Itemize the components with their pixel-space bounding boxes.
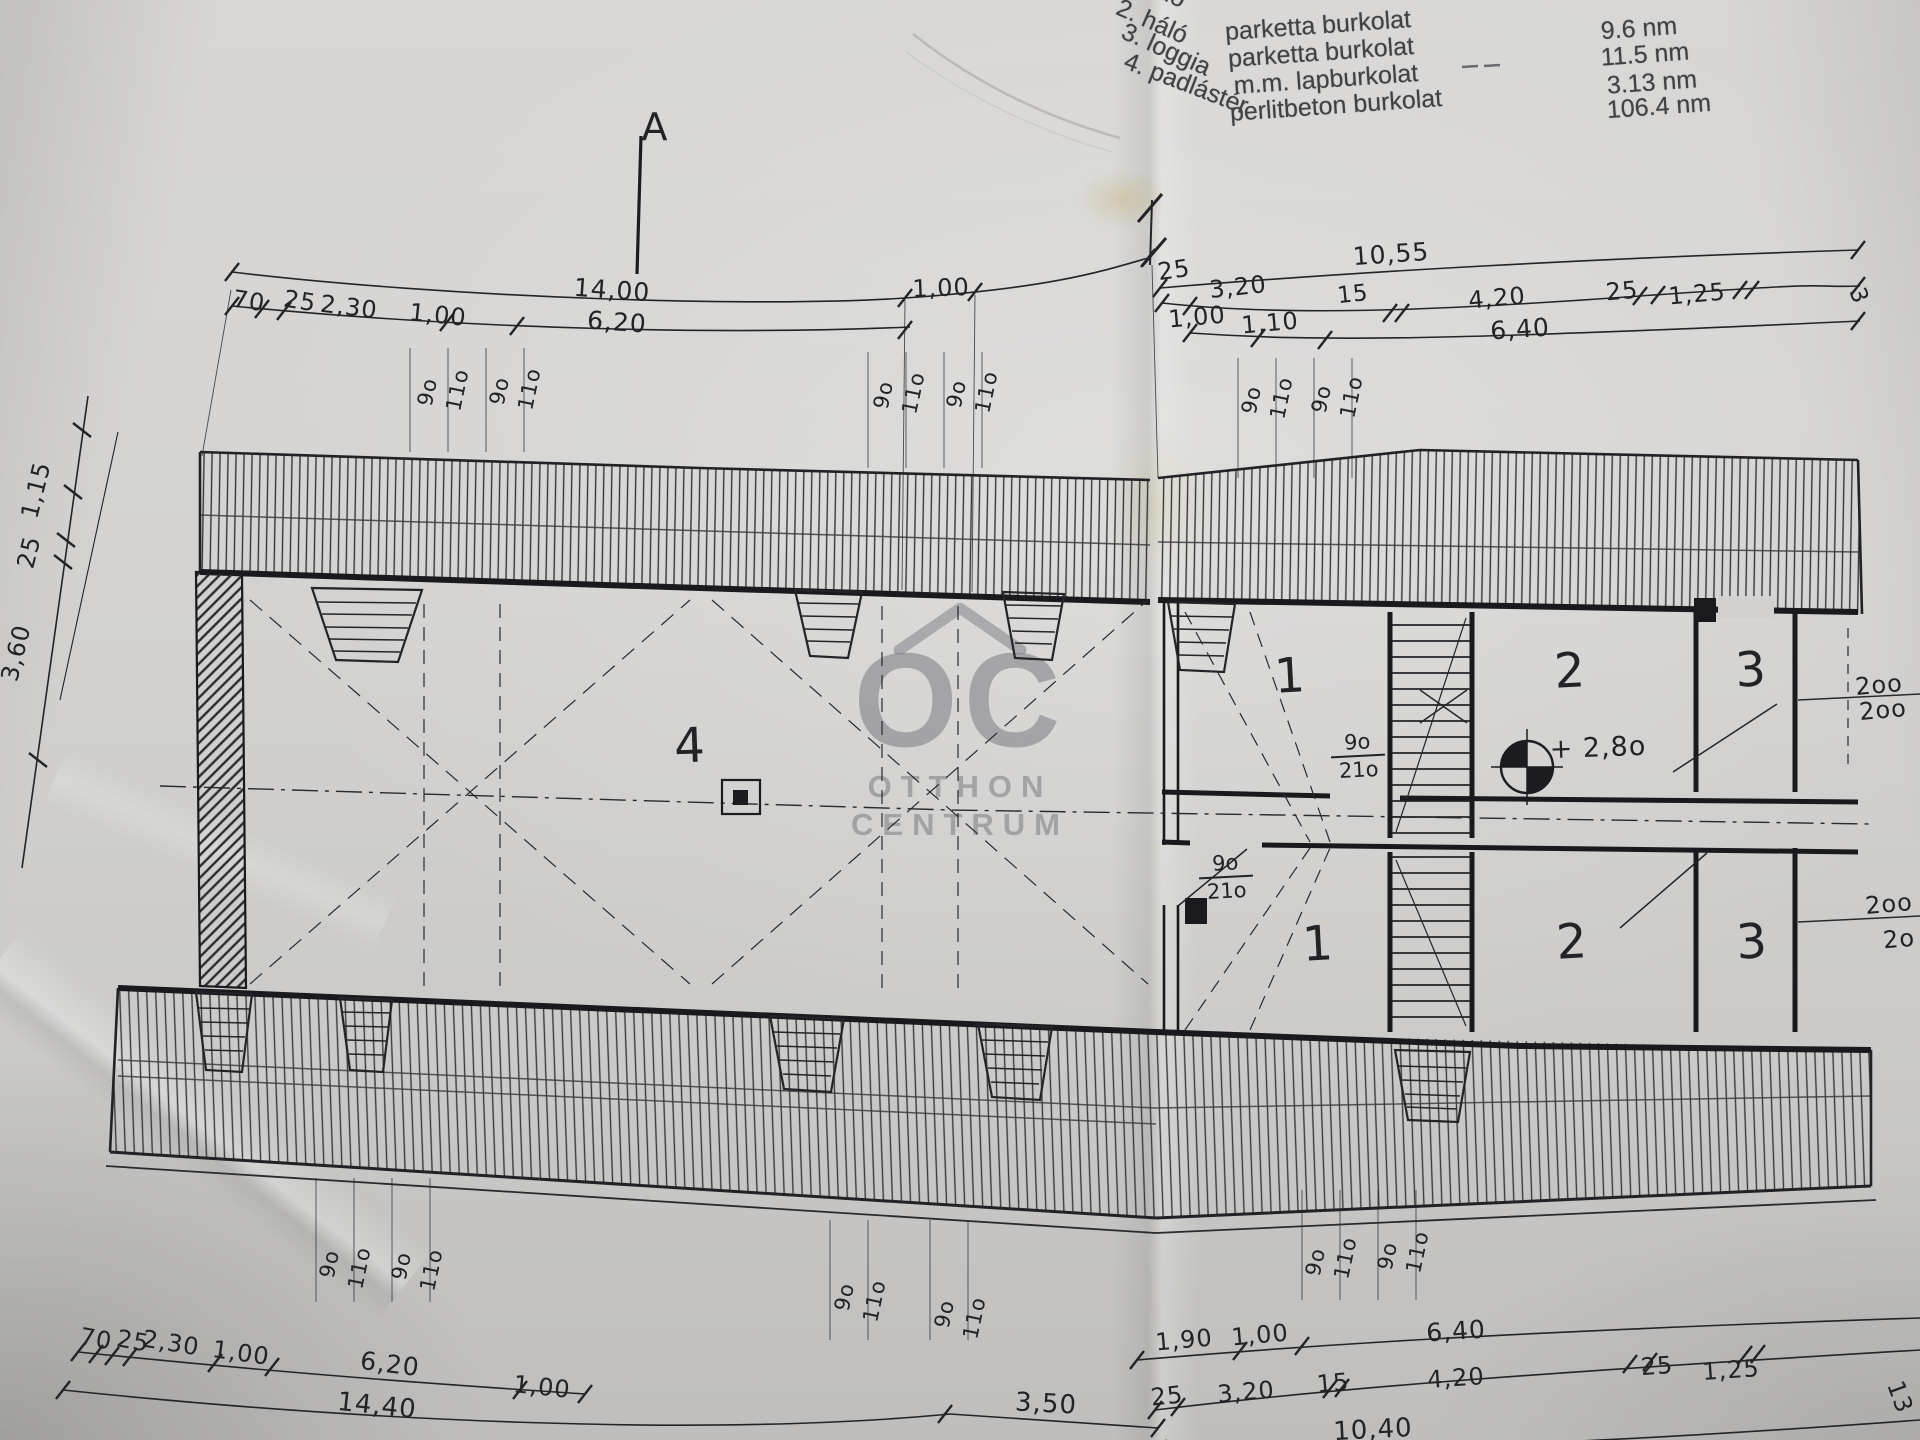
window-size-label: 9o xyxy=(487,375,513,407)
dimension-label: 25 xyxy=(13,533,44,570)
window-size-label: 9o xyxy=(317,1248,343,1280)
dimension-label: 6,40 xyxy=(1489,314,1550,343)
floorplan-photo: OC OTTHON CENTRUM xyxy=(0,0,1920,1440)
room-number-label: 2 xyxy=(1555,917,1589,967)
dimension-label: 6,20 xyxy=(586,307,647,336)
dimension-label: 25 xyxy=(1156,256,1192,284)
room-number-label: 2 xyxy=(1553,646,1587,696)
door-size-label: 9o21o xyxy=(1198,851,1255,904)
dimension-label: 3,20 xyxy=(1208,272,1268,302)
dimension-label: 2oo xyxy=(1864,890,1914,918)
window-size-label: 11o xyxy=(1267,375,1296,421)
window-size-label: 11o xyxy=(972,369,1001,415)
dimension-label: 13 xyxy=(1883,1378,1917,1417)
window-size-label: 11o xyxy=(899,370,928,416)
window-size-label: 11o xyxy=(1337,374,1366,420)
dimension-label: 1,00 xyxy=(408,300,468,330)
dimension-label: 4,20 xyxy=(1427,1364,1486,1392)
dimension-label: 4,20 xyxy=(1467,284,1526,313)
dimension-label: 2oo xyxy=(1858,696,1908,724)
window-size-label: 9o xyxy=(1303,1246,1329,1278)
window-size-label: 11o xyxy=(1331,1235,1360,1281)
dimension-label: 1,00 xyxy=(211,1337,271,1369)
dimension-label: 15 xyxy=(1336,282,1370,308)
window-size-label: 9o xyxy=(389,1250,415,1282)
dimension-label: 1,00 xyxy=(912,275,970,301)
door-height: 21o xyxy=(1338,757,1379,783)
window-size-label: 9o xyxy=(871,379,897,411)
room-number-label: 1 xyxy=(1301,919,1335,969)
dimension-label: 25 xyxy=(1640,1353,1674,1379)
window-size-label: 9o xyxy=(944,378,970,410)
dimension-label: 10,55 xyxy=(1352,239,1430,269)
level-annotation: + 2,8o xyxy=(1549,733,1647,763)
dimension-label: 70 xyxy=(231,287,267,316)
dimension-label: 1,90 xyxy=(1154,1326,1213,1355)
dimension-label: 3 xyxy=(1845,285,1872,308)
dimension-label: 70 xyxy=(78,1324,114,1353)
window-size-label: 9o xyxy=(932,1298,958,1330)
window-size-label: 9o xyxy=(415,376,441,408)
window-size-label: 11o xyxy=(860,1278,889,1324)
dimension-label: 1,10 xyxy=(1240,309,1299,338)
dimension-label: 14,00 xyxy=(573,275,651,305)
window-size-label: 11o xyxy=(515,366,544,412)
dimension-label: 25 xyxy=(1605,278,1640,305)
dimension-label: 1,00 xyxy=(1167,303,1226,332)
window-size-label: 11o xyxy=(1403,1229,1432,1275)
window-size-label: 11o xyxy=(960,1295,989,1341)
dimension-label: 6,40 xyxy=(1425,1316,1486,1345)
room-number-label: 4 xyxy=(673,721,706,770)
dimension-label: 14,40 xyxy=(336,1389,418,1423)
window-size-label: 9o xyxy=(1309,383,1335,415)
door-width: 9o xyxy=(1212,850,1239,875)
door-size-label: 9o21o xyxy=(1330,730,1387,783)
dimension-label: 25 xyxy=(1150,1382,1185,1409)
window-size-label: 11o xyxy=(345,1245,374,1291)
dimension-label: 1,25 xyxy=(1667,280,1726,309)
dimension-label: 1,00 xyxy=(512,1372,572,1402)
dimension-label: 6,20 xyxy=(359,1348,421,1380)
dimension-label: 3,60 xyxy=(0,622,35,684)
dimension-label: 15 xyxy=(1316,1370,1351,1397)
room-number-label: 1 xyxy=(1273,651,1307,701)
dimension-label: 2,30 xyxy=(319,292,379,323)
dimension-label: 3,50 xyxy=(1014,1389,1077,1418)
dimension-label: 10,40 xyxy=(1333,1415,1414,1440)
room-number-label: 3 xyxy=(1734,645,1768,695)
dimension-label: 3,20 xyxy=(1216,1378,1275,1407)
window-size-label: 9o xyxy=(1239,384,1265,416)
dimension-label: 1,00 xyxy=(1230,1321,1289,1350)
window-size-label: 9o xyxy=(832,1281,858,1313)
dimension-label: 1,25 xyxy=(1702,1356,1761,1384)
section-marker-label: A xyxy=(642,108,669,146)
door-width: 9o xyxy=(1344,729,1371,754)
dimension-label: 25 xyxy=(282,287,318,316)
door-height: 21o xyxy=(1206,878,1247,904)
window-size-label: 11o xyxy=(443,367,472,413)
room-number-label: 3 xyxy=(1735,917,1769,967)
window-size-label: 9o xyxy=(1375,1240,1401,1272)
legend-area-label: 106.4 nm xyxy=(1606,91,1712,123)
dimension-label: 1,15 xyxy=(17,459,54,521)
dimension-label: 2,30 xyxy=(141,1327,201,1360)
dimension-label: 2o xyxy=(1882,926,1916,953)
annotation-layer: A + 2,8o 14,0070252,301,006,201,0010,552… xyxy=(0,0,1920,1440)
window-size-label: 11o xyxy=(417,1247,446,1293)
